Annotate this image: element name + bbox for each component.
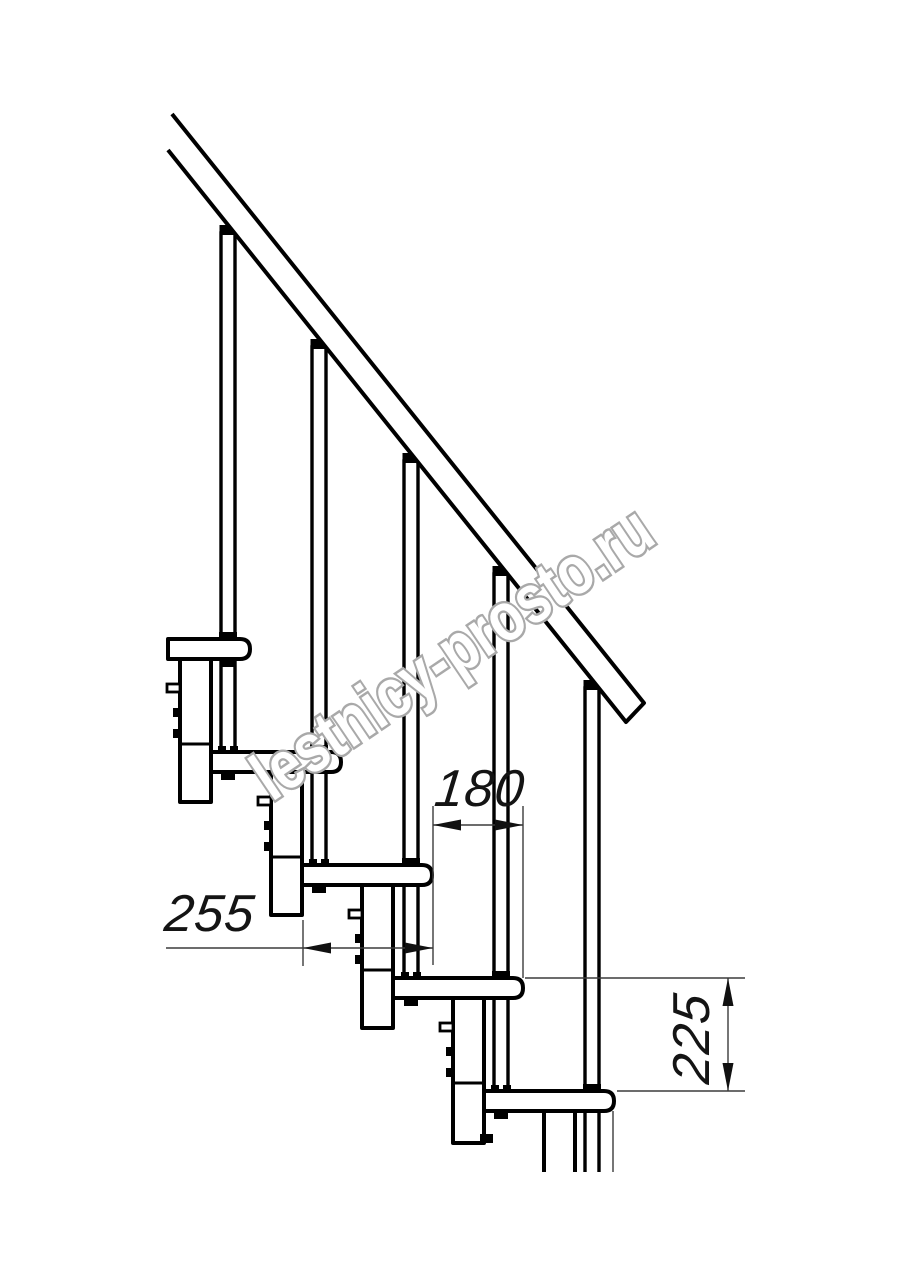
- adjuster-plate: [167, 684, 180, 692]
- adjuster-bolt: [446, 1047, 455, 1056]
- adjuster-bolt: [446, 1068, 455, 1077]
- support-post: [491, 998, 511, 1092]
- nut: [494, 1112, 508, 1119]
- support-post-cut: [585, 1111, 599, 1172]
- nut: [404, 999, 418, 1006]
- tread: [393, 978, 523, 998]
- adjuster-bolt: [264, 821, 273, 830]
- nut: [221, 660, 235, 667]
- baluster-mount: [583, 1084, 601, 1091]
- adjuster-bolt: [173, 729, 182, 738]
- drawing-canvas: 180 255 225 lestnicy-prosto.ru: [0, 0, 914, 1280]
- dimension-label-rise: 225: [663, 990, 721, 1087]
- support-post: [218, 659, 238, 753]
- baluster: [583, 680, 601, 1091]
- stringer-module: [440, 998, 493, 1143]
- staircase-side-view-drawing: 180 255 225 lestnicy-prosto.ru: [0, 0, 914, 1280]
- adjuster-bolt: [355, 934, 364, 943]
- tread: [302, 865, 432, 885]
- adjuster-bolt: [264, 842, 273, 851]
- dimension-180: 180: [432, 760, 528, 978]
- baluster: [219, 225, 237, 639]
- nut: [221, 773, 235, 780]
- adjuster-plate: [440, 1023, 453, 1031]
- stringer-module: [349, 885, 393, 1028]
- baluster-mount: [492, 971, 510, 978]
- tread: [168, 639, 250, 659]
- baluster: [310, 339, 328, 752]
- adjuster-bolt: [355, 955, 364, 964]
- adjuster-bolt: [173, 708, 182, 717]
- baluster-mount: [219, 632, 237, 639]
- adjuster-plate: [349, 910, 362, 918]
- tread: [484, 1091, 614, 1111]
- nut: [312, 886, 326, 893]
- module-joint-bolt: [480, 1134, 493, 1143]
- dimension-label-run: 180: [432, 760, 528, 818]
- stringer-module: [167, 659, 211, 802]
- dimension-label-tread-depth: 255: [161, 885, 258, 943]
- baluster-mount: [402, 858, 420, 865]
- support-post: [401, 885, 421, 979]
- dimension-225: 225: [525, 978, 745, 1172]
- stringer-module-cut: [544, 1111, 575, 1172]
